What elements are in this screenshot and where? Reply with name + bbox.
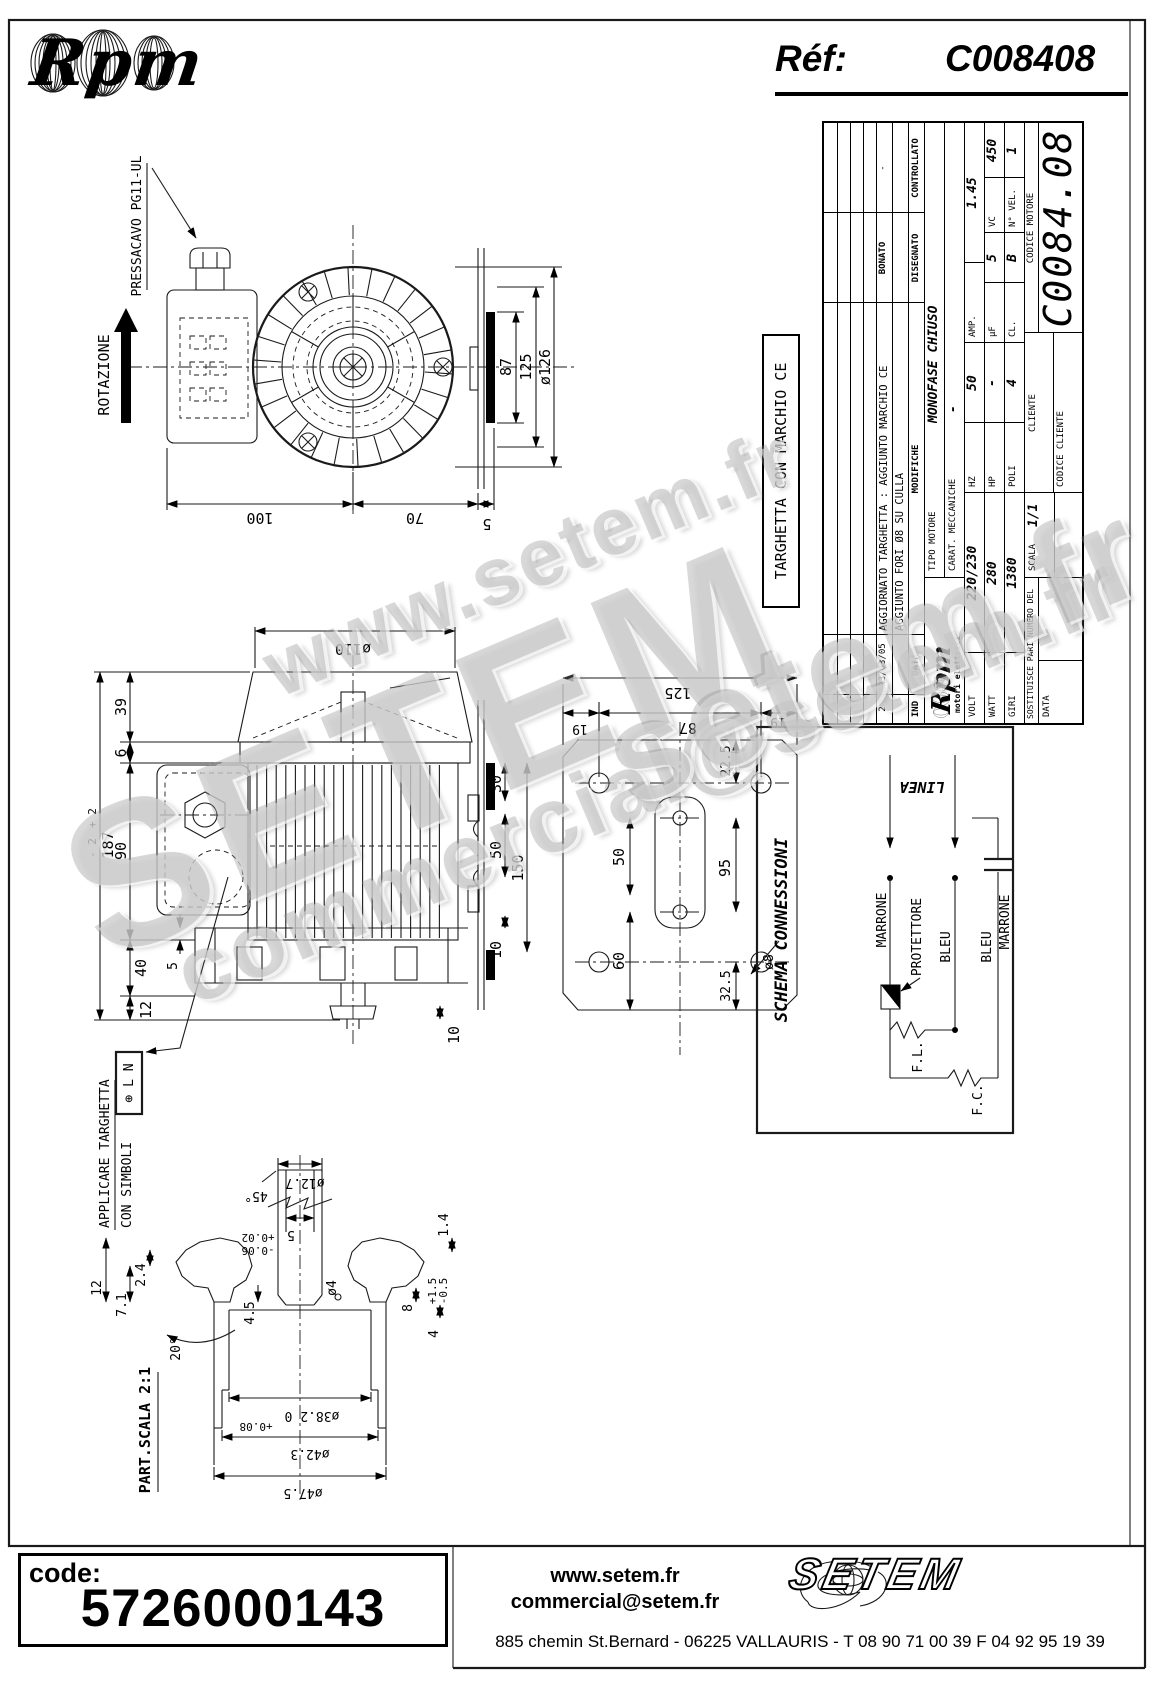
sostituisce-label: SOSTITUISCE PARI NUMERO DEL <box>1026 579 1035 719</box>
poli-value: 4 <box>1005 343 1020 423</box>
applicare-line1: APPLICARE TARGHETTA <box>98 1079 113 1228</box>
dim-plate-32-5: 32.5 <box>719 970 734 1001</box>
codice-motore-label: CODICE MOTORE <box>1026 123 1036 333</box>
volt-value: 220/230 <box>965 493 980 653</box>
dim-shaft-42-3: ø42.3 <box>290 1446 329 1461</box>
schema-bleu-2: BLEU <box>980 931 995 962</box>
schema-title: SCHEMA CONNESSIONI <box>772 837 792 1022</box>
hp-label: HP <box>988 437 998 487</box>
dim-shaft-38-2-tol: +0.08 <box>239 1420 272 1433</box>
schema-marrone-1: MARRONE <box>875 893 890 948</box>
tipo-motore-label: TIPO MOTORE <box>928 451 938 571</box>
front-view: 87 125 ø126 100 70 5 ROTAZIONE PRESSACAV… <box>95 155 575 533</box>
codice-cliente-label: CODICE CLIENTE <box>1056 337 1066 487</box>
amp-label: AMP. <box>968 277 978 337</box>
applicare-annotation: APPLICARE TARGHETTA CON SIMBOLI ⊕ L N <box>98 1052 142 1230</box>
rev2-disegnato: BONATO <box>878 213 888 303</box>
schema-protettore: PROTETTORE <box>910 898 925 976</box>
watt-value: 280 <box>985 493 1000 653</box>
rev2-date: 23/03/05 <box>878 635 888 695</box>
dim-shaft-5-tolm: -0.06 <box>241 1244 274 1257</box>
dim-side-tol-minus: - 2 <box>86 838 99 858</box>
rev2-text: AGGIORNATO TARGHETTA : AGGIUNTO MARCHIO … <box>878 305 890 631</box>
rpm-logo: Rpm <box>26 26 204 101</box>
giri-value: 1380 <box>1005 493 1020 653</box>
dim-shaft-2-4: 2.4 <box>134 1263 149 1287</box>
dim-shaft-20deg: 20° <box>169 1337 184 1360</box>
part-scala-label: PART.SCALA 2:1 <box>136 1367 154 1493</box>
dim-side-tol-plus: + 2 <box>86 808 99 828</box>
rev-header-modifiche: MODIFICHE <box>911 303 921 635</box>
dim-plate-19l: 19 <box>572 721 588 736</box>
watt-label: WATT <box>988 657 998 717</box>
dim-shaft-4: 4 <box>427 1330 442 1338</box>
ref-value: C008408 <box>945 38 1095 80</box>
nvel-value: 1 <box>1005 123 1020 178</box>
tb-logo-text: Rpm <box>927 634 957 715</box>
rev2-controllato: - <box>878 123 888 213</box>
simboli-box-label: ⊕ L N <box>122 1063 137 1102</box>
dim-shaft-12: 12 <box>90 1280 105 1296</box>
schema-marrone-2: MARRONE <box>998 895 1013 950</box>
dim-shaft-47-5: ø47.5 <box>283 1485 322 1500</box>
dim-plate-22-5: 22.5 <box>719 745 734 776</box>
nvel-label: N° VEL. <box>1008 179 1018 227</box>
footer-address: 885 chemin St.Bernard - 06225 VALLAURIS … <box>455 1632 1145 1652</box>
uf-label: µF <box>988 297 998 337</box>
dim-front-87: 87 <box>497 358 515 376</box>
setem-logo-text: SETEM <box>785 1550 967 1600</box>
drawing-sheet: 87 125 ø126 100 70 5 ROTAZIONE PRESSACAV… <box>0 0 1154 1683</box>
title-block: 2 23/03/05 AGGIORNATO TARGHETTA : AGGIUN… <box>822 121 1084 725</box>
dim-front-70: 70 <box>406 509 424 527</box>
dim-shaft-12-7: ø12.7 <box>285 1175 324 1190</box>
side-view: ø110 187 + 2 - 2 39 6 90 40 12 <box>86 627 527 1052</box>
schema-fl: F.L. <box>911 1041 926 1072</box>
dim-side-10: 10 <box>487 941 505 959</box>
codice-motore-value: C0084.08 <box>1036 123 1080 333</box>
dim-side-5: 5 <box>166 962 181 970</box>
hz-value: 50 <box>965 343 980 423</box>
shaft-detail: ø12.7 45° 5 +0.02 -0.06 2.4 12 7.1 20° 4… <box>90 1155 452 1500</box>
dim-side-150: 150 <box>509 854 527 881</box>
hz-label: HZ <box>968 437 978 487</box>
dim-side-50: 50 <box>487 841 505 859</box>
dim-shaft-d4: ø4 <box>325 1280 340 1296</box>
vc-label: VC <box>988 187 998 227</box>
code-value: 5726000143 <box>21 1578 445 1639</box>
dim-plate-87: 87 <box>679 719 697 737</box>
cl-label: CL. <box>1008 297 1018 337</box>
dim-plate-95: 95 <box>716 859 734 877</box>
dim-side-12: 12 <box>137 1001 155 1019</box>
targhetta-ce-text: TARGHETTA CON MARCHIO CE <box>772 363 790 580</box>
scala-value: 1/1 <box>1026 493 1041 527</box>
rev-header-data: DATA <box>911 635 921 695</box>
dim-side-39: 39 <box>112 698 130 716</box>
reference-header: Réf: C008408 <box>775 38 1128 96</box>
dim-front-100: 100 <box>246 509 273 527</box>
cradle-bracket <box>195 928 468 1029</box>
dim-shaft-8: 8 <box>401 1304 416 1312</box>
dim-side-6: 6 <box>112 748 130 757</box>
poli-label: POLI <box>1008 437 1018 487</box>
rev-header-ind: IND <box>911 695 921 723</box>
targhetta-ce-label: TARGHETTA CON MARCHIO CE <box>762 334 800 608</box>
pressacavo-label: PRESSACAVO PG11-UL <box>130 155 145 296</box>
cl-value: B <box>1005 233 1020 283</box>
amp-value: 1.45 <box>965 123 980 263</box>
rev2-ind: 2 <box>878 695 888 723</box>
hp-value: - <box>985 343 1000 423</box>
dim-side-90: 90 <box>112 842 130 860</box>
schema-fc: F.C. <box>971 1084 986 1115</box>
footer-website: www.setem.fr <box>470 1563 760 1589</box>
dim-side-110: ø110 <box>335 640 371 658</box>
scala-label: SCALA <box>1028 521 1038 571</box>
cliente-label: CLIENTE <box>1028 333 1038 493</box>
dim-side-40: 40 <box>132 959 150 977</box>
carat-value: - <box>946 313 961 413</box>
terminal-box-front <box>167 248 257 443</box>
dim-shaft-5-tolp: +0.02 <box>241 1231 274 1244</box>
rev-header-disegnato: DISEGNATO <box>911 213 921 303</box>
schema-bleu-1: BLEU <box>939 931 954 962</box>
footer-email: commercial@setem.fr <box>470 1589 760 1615</box>
schema-connessioni: SCHEMA CONNESSIONI LINEA MARRONE PROTETT… <box>757 727 1013 1133</box>
rev-header-controllato: CONTROLLATO <box>911 123 921 213</box>
dim-shaft-45deg: 45° <box>244 1188 267 1203</box>
dim-plate-125: 125 <box>664 684 691 702</box>
schema-linea-label: LINEA <box>899 778 944 796</box>
carat-label: CARAT. MECCANICHE <box>948 431 958 571</box>
front-dims-bottom: 100 70 5 <box>167 428 494 533</box>
dim-shaft-38-2: ø38.2 0 <box>285 1408 340 1423</box>
rotation-arrow <box>114 308 138 423</box>
title-block-logo: Rpm motori elettrici <box>924 579 964 719</box>
rpm-logo-text: Rpm <box>27 26 209 101</box>
rotation-label: ROTAZIONE <box>95 334 113 415</box>
tb-data-label: DATA <box>1042 663 1052 717</box>
dim-shaft-4-5: 4.5 <box>243 1301 258 1324</box>
dim-shaft-1-4: 1.4 <box>437 1213 452 1237</box>
dim-front-d126: ø126 <box>536 349 554 385</box>
dim-plate-60: 60 <box>610 952 628 970</box>
rev1-text: AGGIUNTO FORI Ø8 SU CULLA <box>894 305 906 631</box>
footer-contact: www.setem.fr commercial@setem.fr <box>470 1563 760 1615</box>
dim-side-30: 30 <box>487 775 505 793</box>
giri-label: GIRI <box>1008 657 1018 717</box>
dim-front-5: 5 <box>482 515 491 533</box>
tipo-motore-value: MONOFASE CHIUSO <box>926 133 941 423</box>
setem-logo: SETEM <box>790 1550 962 1600</box>
ref-label: Réf: <box>775 38 847 79</box>
applicare-line2: CON SIMBOLI <box>120 1142 135 1228</box>
dim-shaft-8-tolm: -0.5 <box>437 1278 450 1305</box>
volt-label: VOLT <box>968 657 978 717</box>
dim-front-125: 125 <box>517 353 535 380</box>
vc-value: 450 <box>985 123 1000 178</box>
plate-view: 125 87 19 19 22.5 95 50 60 32.5 ø8 <box>563 678 797 1055</box>
code-box: code: 5726000143 <box>18 1553 448 1647</box>
dim-plate-50: 50 <box>610 848 628 866</box>
dim-shaft-7-1: 7.1 <box>115 1293 130 1316</box>
terminal-box-side <box>157 765 252 915</box>
dim-side-collar-10: 10 <box>445 1026 463 1044</box>
uf-value: 5 <box>985 233 1000 283</box>
dim-shaft-5: 5 <box>287 1227 295 1242</box>
